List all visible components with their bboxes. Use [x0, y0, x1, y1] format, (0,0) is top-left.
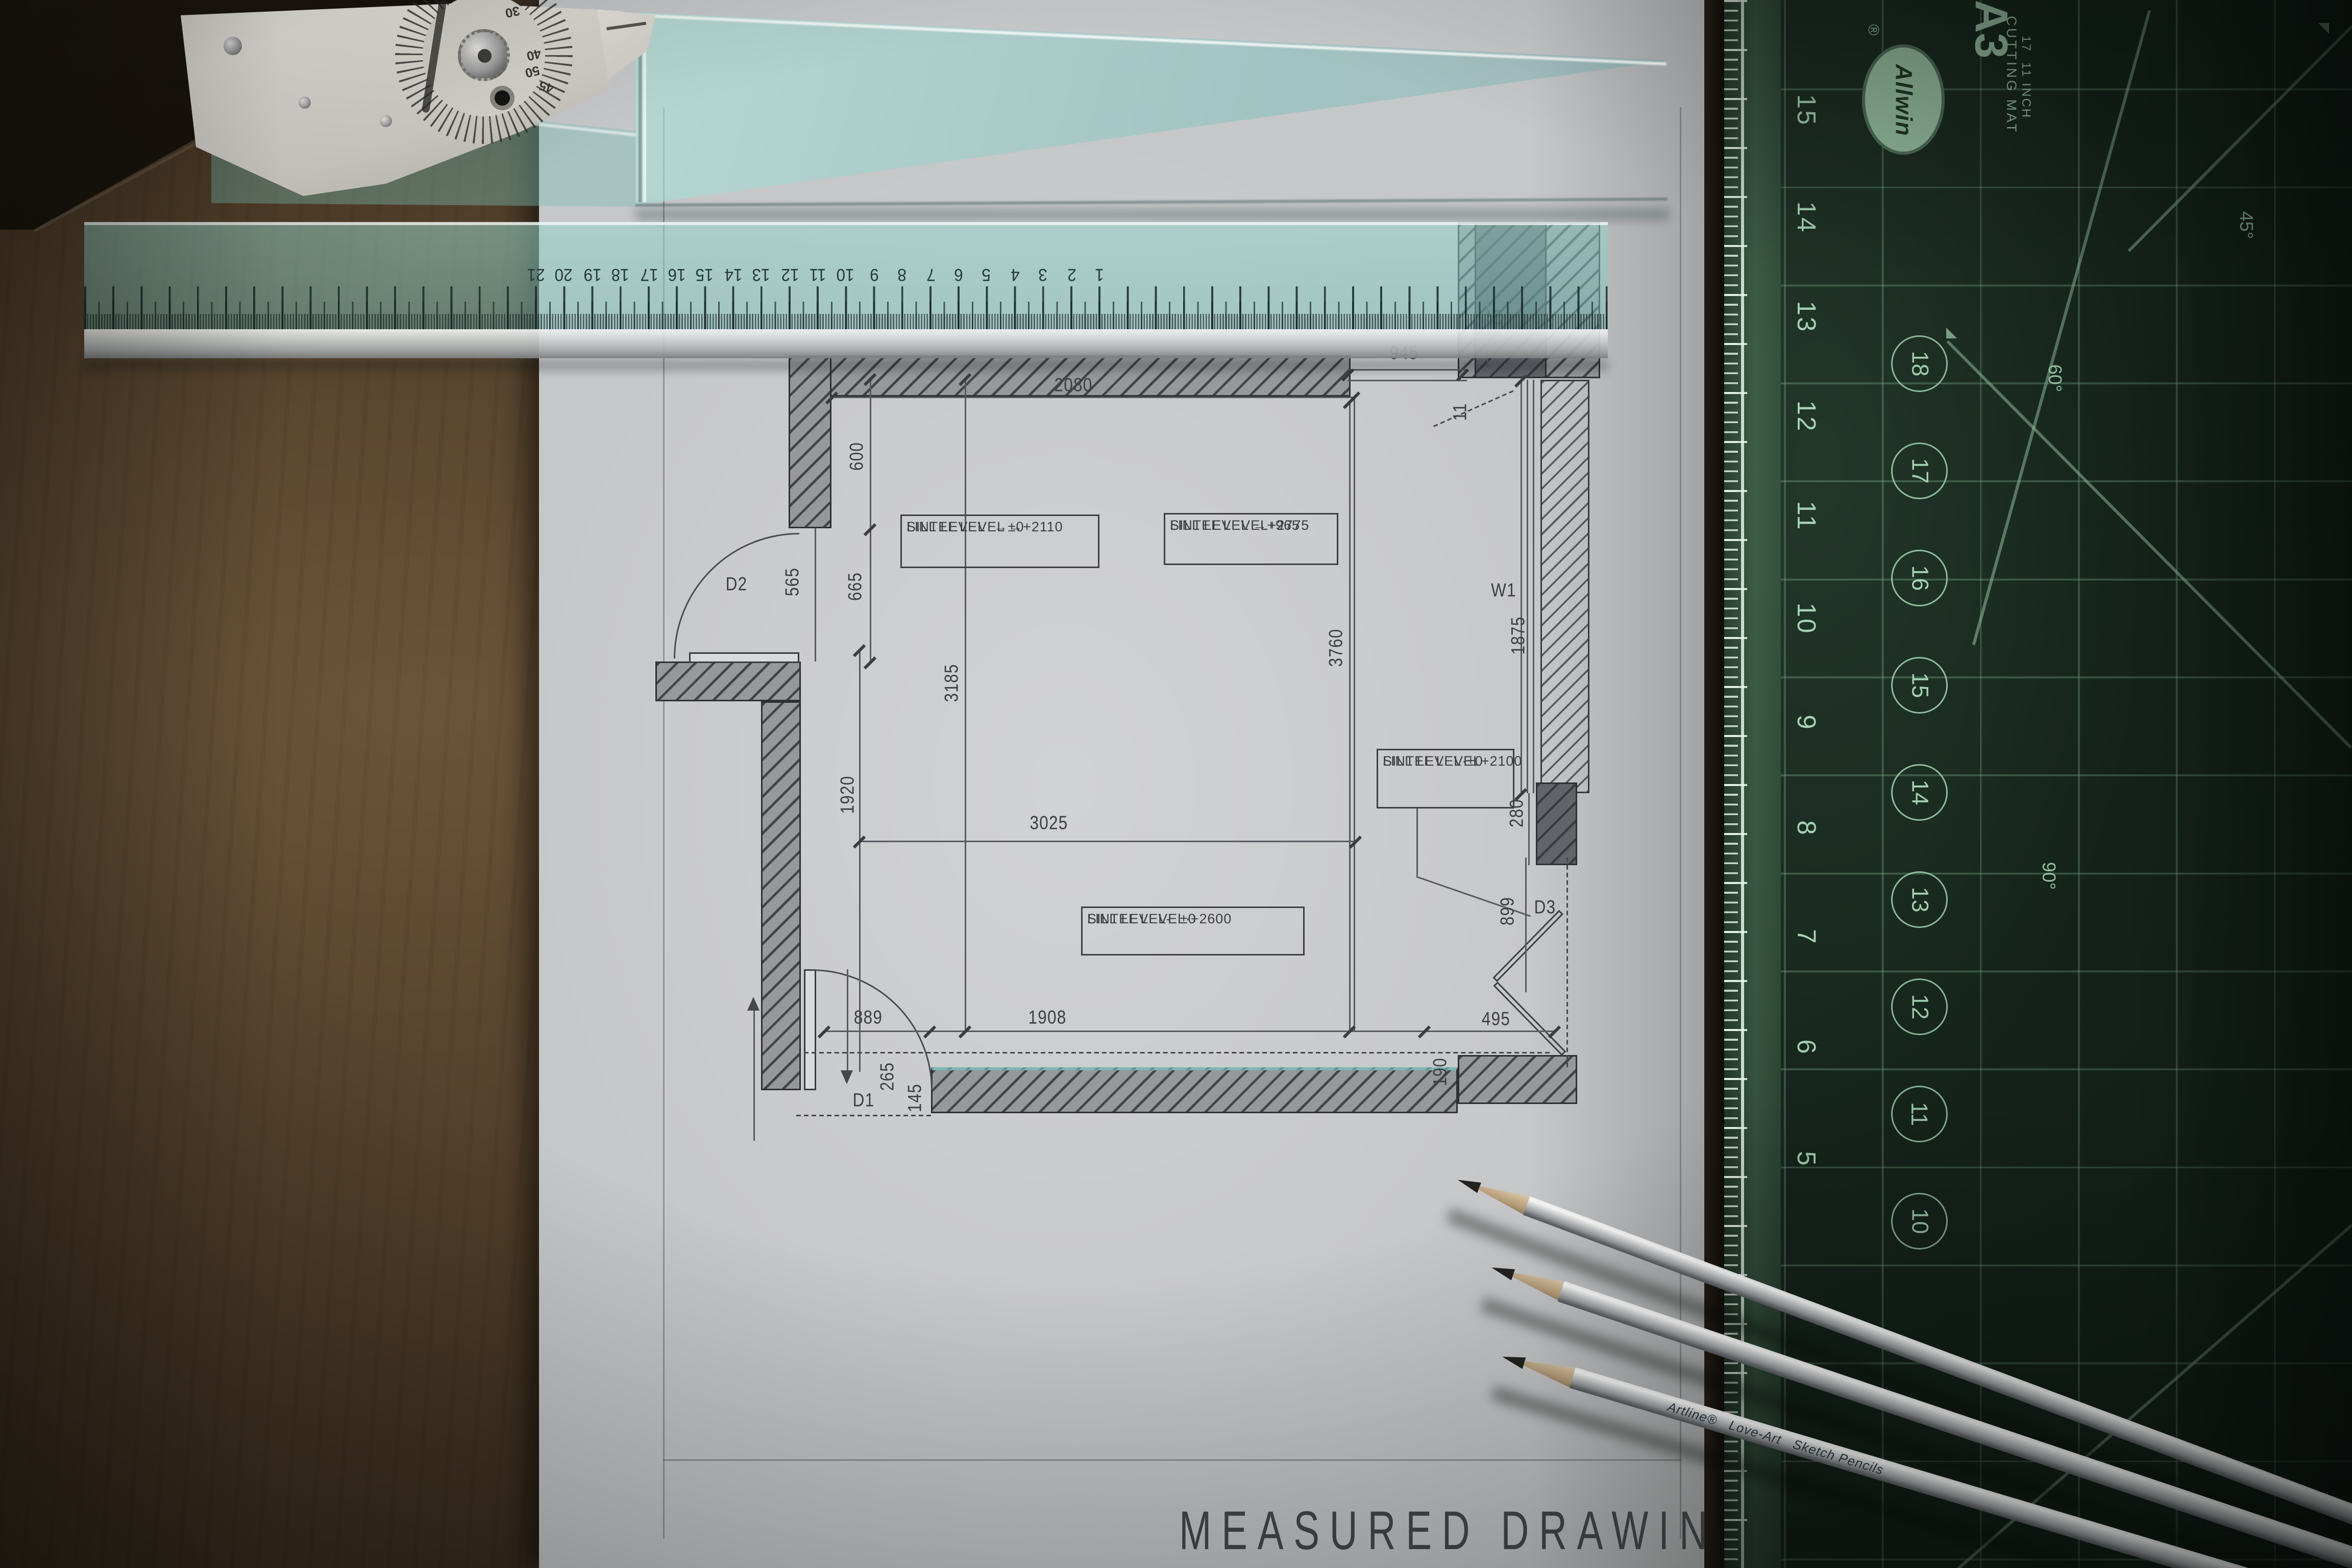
dimension-label: 265: [877, 1062, 899, 1091]
dim-line: [1354, 397, 1355, 1031]
ruler-number: 6: [943, 264, 974, 284]
wall-segment: [1540, 380, 1589, 793]
knob-screw-icon: [478, 49, 492, 63]
rivet-small-1: [299, 96, 311, 109]
dim-line: [1521, 380, 1522, 793]
pivot-hole: [490, 86, 514, 110]
ruler-number: 17: [633, 264, 664, 284]
dimension-label: D3: [1534, 897, 1556, 919]
ruler-number: 4: [999, 264, 1030, 284]
dimension-label: D1: [853, 1090, 875, 1112]
dim-line: [847, 969, 848, 1072]
dim-line: [1416, 807, 1418, 876]
ruler-number: 15: [690, 264, 720, 284]
glass-shadow: [635, 208, 1669, 220]
dimension-label: 3760: [1326, 629, 1347, 667]
dim-line: [815, 528, 816, 661]
dimension-label: 145: [905, 1084, 926, 1112]
north-arrow-icon: [747, 997, 759, 1011]
ruler-number: 20: [549, 264, 579, 284]
ruler-number: 10: [830, 264, 861, 284]
dim-line: [831, 397, 1354, 398]
dimension-label: 899: [1498, 897, 1519, 925]
mat-shading: [1724, 0, 2352, 1568]
ruler-number: 11: [802, 264, 833, 284]
hidden-line: [804, 1052, 1550, 1053]
ruler-number: 12: [774, 264, 805, 284]
dimension-label: 495: [1482, 1009, 1510, 1031]
ruler-metal-edge: [84, 329, 1608, 358]
lintel-sill-annotation: LINTEL LEVEL+2100SILL LEVEL·±0: [1377, 749, 1514, 808]
dim-line: [1349, 401, 1351, 1031]
wall-segment: [761, 701, 801, 1090]
wall-segment: [931, 1067, 1458, 1113]
dim-line: [824, 1031, 1554, 1032]
hidden-line: [1566, 857, 1568, 1067]
leader-arrow-icon: [841, 1070, 853, 1084]
dimension-label: 11: [1450, 403, 1472, 421]
ruler-shadow: [84, 360, 1608, 371]
dimension-label: 3025: [1030, 813, 1068, 835]
window-w1-line: [1533, 380, 1534, 793]
photo-scene: 208094551511600565665D231853760W11875192…: [0, 0, 2352, 1568]
ruler-number: 5: [971, 264, 1002, 284]
dim-line: [859, 841, 1355, 842]
ruler-number: 13: [746, 264, 777, 284]
rivet-large: [224, 37, 242, 55]
lintel-sill-annotation: LINTEL LEVEL·+2600SILL LEVEL- ±0: [1081, 906, 1305, 955]
dimension-label: 889: [854, 1008, 883, 1029]
lintel-sill-annotation: LINTEL LEVEL+2775SILL LEVEL →+965: [1164, 513, 1338, 565]
ruler-number: 14: [718, 264, 748, 284]
dimension-label: 190: [1430, 1058, 1452, 1086]
window-w1-line: [1526, 380, 1528, 793]
lintel-sill-annotation: LINTEL LEVEL →+2110SILL LEVEL →±0: [900, 514, 1099, 568]
ruler-number: 3: [1028, 264, 1059, 284]
dimension-label: 3185: [942, 664, 963, 702]
ruler-number: 8: [887, 264, 918, 284]
rivet-small-2: [380, 115, 392, 127]
dimension-label: D2: [726, 574, 748, 596]
dimension-label: 1875: [1508, 617, 1530, 655]
dimension-label: 1908: [1028, 1008, 1067, 1029]
wall-segment: [789, 355, 831, 528]
dimension-label: 665: [845, 572, 867, 601]
dim-line: [753, 1008, 755, 1141]
wall-segment: [1458, 1055, 1577, 1104]
sheet-rule: [663, 1459, 1681, 1461]
hidden-line: [796, 1115, 931, 1116]
dimension-label: 2080: [1055, 375, 1093, 397]
drawing-title: MEASURED DRAWING: [1179, 1501, 1758, 1563]
ruler-number: 19: [577, 264, 607, 284]
ruler-number: 2: [1056, 264, 1087, 284]
dimension-label: 565: [782, 568, 804, 596]
dim-line: [1525, 857, 1527, 992]
dim-line: [1347, 380, 1467, 381]
ruler-number: 16: [661, 264, 692, 284]
wall-segment: [1536, 782, 1577, 865]
ruler-number: 18: [605, 264, 636, 284]
ruler-number: 9: [859, 264, 889, 284]
dim-line: [870, 378, 871, 661]
protractor-number: 30: [504, 3, 521, 21]
ruler-body: 212019181716151413121110987654321: [84, 222, 1608, 329]
ruler-number: 1: [1084, 264, 1115, 284]
wall-segment: [655, 661, 801, 701]
dimension-label: 1920: [838, 776, 859, 814]
dim-line: [965, 378, 966, 1031]
ruler-number: 21: [521, 264, 551, 284]
ruler-number: 7: [915, 264, 946, 284]
dim-line: [1528, 793, 1530, 865]
dimension-label: 600: [847, 442, 868, 471]
dimension-label: W1: [1491, 580, 1516, 602]
